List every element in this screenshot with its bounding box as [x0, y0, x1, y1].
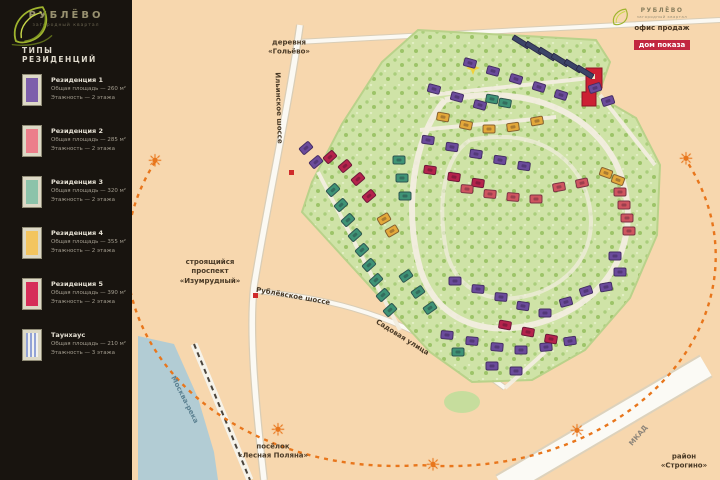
residence-name: Резиденция 1 [51, 75, 126, 85]
legend-list: Резиденция 1 Общая площадь — 260 м² Этаж… [22, 74, 132, 363]
house-marker[interactable] [447, 172, 461, 183]
residence-area: Общая площадь — 355 м² [51, 238, 126, 247]
legend-swatch [22, 125, 42, 157]
leaf-logo-icon [0, 0, 64, 50]
house-marker[interactable] [618, 201, 631, 210]
house-marker[interactable] [506, 192, 520, 202]
house-marker[interactable] [539, 309, 552, 318]
show-house-badge: дом показа [634, 40, 691, 50]
legend-swatch [22, 329, 42, 361]
house-marker[interactable] [483, 189, 497, 199]
river-water [138, 336, 218, 480]
house-marker[interactable] [393, 156, 406, 165]
mini-leaf-logo-icon [608, 6, 634, 28]
residence-area: Общая площадь — 260 м² [51, 85, 126, 94]
residence-name: Резиденция 5 [51, 279, 126, 289]
residence-area: Общая площадь — 285 м² [51, 136, 126, 145]
residence-floors: Этажность — 2 этажа [51, 196, 126, 205]
legend-text: Резиденция 2 Общая площадь — 285 м² Этаж… [51, 125, 126, 154]
legend-item-4: Резиденция 4 Общая площадь — 355 м² Этаж… [22, 227, 132, 261]
legend-swatch [22, 176, 42, 208]
house-marker[interactable] [609, 252, 622, 261]
house-marker[interactable] [506, 122, 520, 133]
house-marker[interactable] [449, 277, 462, 286]
house-marker[interactable] [440, 330, 454, 340]
house-marker[interactable] [614, 268, 627, 277]
house-marker[interactable] [493, 155, 507, 166]
house-marker[interactable] [510, 367, 523, 376]
house-marker[interactable] [623, 227, 636, 236]
house-marker[interactable] [563, 336, 577, 347]
sales-office-block: РУБЛЁВО загородный квартал офис продаж д… [608, 6, 716, 51]
legend-swatch [22, 227, 42, 259]
house-marker[interactable] [471, 284, 485, 294]
residence-floors: Этажность — 2 этажа [51, 145, 126, 154]
legend-text: Резиденция 3 Общая площадь — 320 м² Этаж… [51, 176, 126, 205]
legend-swatch [22, 278, 42, 310]
house-marker[interactable] [452, 348, 465, 357]
house-marker[interactable] [483, 125, 496, 134]
house-marker[interactable] [469, 149, 483, 160]
residence-floors: Этажность — 2 этажа [51, 298, 126, 307]
house-marker[interactable] [460, 184, 474, 194]
legend-item-6: Таунхаус Общая площадь — 210 м² Этажност… [22, 329, 132, 363]
residence-area: Общая площадь — 210 м² [51, 340, 126, 349]
legend-text: Таунхаус Общая площадь — 210 м² Этажност… [51, 329, 126, 358]
legend-item-1: Резиденция 1 Общая площадь — 260 м² Этаж… [22, 74, 132, 108]
house-marker[interactable] [490, 342, 504, 352]
legend-item-5: Резиденция 5 Общая площадь — 390 м² Этаж… [22, 278, 132, 312]
residence-floors: Этажность — 3 этажа [51, 349, 126, 358]
legend-text: Резиденция 5 Общая площадь — 390 м² Этаж… [51, 278, 126, 307]
house-marker[interactable] [465, 336, 479, 346]
legend-item-3: Резиденция 3 Общая площадь — 320 м² Этаж… [22, 176, 132, 210]
residence-name: Резиденция 3 [51, 177, 126, 187]
legend-text: Резиденция 1 Общая площадь — 260 м² Этаж… [51, 74, 126, 103]
house-marker[interactable] [515, 346, 528, 355]
house-marker[interactable] [494, 292, 508, 302]
residence-area: Общая площадь — 390 м² [51, 289, 126, 298]
house-marker[interactable] [530, 195, 543, 204]
residence-name: Резиденция 2 [51, 126, 126, 136]
legend-swatch [22, 74, 42, 106]
house-marker[interactable] [517, 161, 531, 172]
residence-floors: Этажность — 2 этажа [51, 94, 126, 103]
house-marker[interactable] [486, 362, 499, 371]
residence-name: Резиденция 4 [51, 228, 126, 238]
house-marker[interactable] [445, 142, 459, 153]
house-marker[interactable] [396, 174, 409, 183]
legend-text: Резиденция 4 Общая площадь — 355 м² Этаж… [51, 227, 126, 256]
residence-name: Таунхаус [51, 330, 126, 340]
legend-item-2: Резиденция 2 Общая площадь — 285 м² Этаж… [22, 125, 132, 159]
green-island [444, 391, 480, 413]
residence-floors: Этажность — 2 этажа [51, 247, 126, 256]
logo-block: РУБЛЁВО загородный квартал [0, 0, 132, 28]
legend-sidebar: РУБЛЁВО загородный квартал ТИПЫ РЕЗИДЕНЦ… [0, 0, 132, 480]
residence-area: Общая площадь — 320 м² [51, 187, 126, 196]
masterplan-poster: ☀☀☀☀☀ деревня «Гольёво»Ильинское шоссест… [0, 0, 720, 480]
house-marker[interactable] [423, 165, 437, 176]
house-marker[interactable] [399, 192, 412, 201]
house-marker[interactable] [614, 188, 627, 197]
house-marker[interactable] [516, 301, 530, 312]
house-marker[interactable] [421, 135, 435, 146]
house-marker[interactable] [621, 214, 634, 223]
